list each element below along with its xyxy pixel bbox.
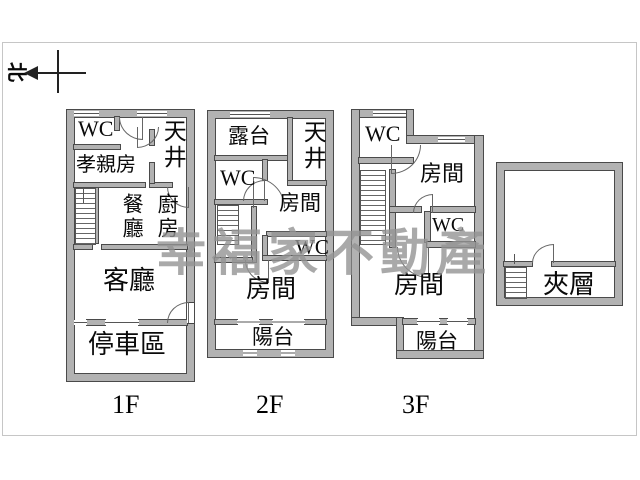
window bbox=[281, 350, 295, 356]
stairs-centerline bbox=[83, 189, 84, 203]
window bbox=[105, 320, 139, 325]
room-label-wc-upper: WC bbox=[220, 167, 255, 189]
window bbox=[417, 319, 440, 324]
window bbox=[237, 320, 260, 324]
stairs-centerline bbox=[514, 254, 515, 264]
room-label-balcony: 陽台 bbox=[416, 331, 458, 352]
room-label-mezzanine: 夾層 bbox=[543, 272, 595, 298]
room-label-skylight: 天井 bbox=[300, 120, 325, 172]
wall bbox=[305, 320, 326, 324]
wall bbox=[352, 318, 403, 325]
wall bbox=[440, 319, 447, 324]
plan-mezzanine: 夾層 bbox=[497, 163, 622, 305]
window bbox=[272, 320, 305, 324]
door-arc bbox=[413, 194, 433, 213]
door-arc bbox=[532, 244, 554, 263]
wall bbox=[431, 207, 475, 212]
wall bbox=[403, 319, 417, 324]
floor-plan-sheet: 北 幸福家不動產 WC 天井 孝親房 餐廳 廚房 客廳 停車區 bbox=[0, 0, 640, 480]
window bbox=[447, 319, 468, 324]
north-label: 北 bbox=[6, 62, 26, 82]
room-label-dining: 餐廳 bbox=[120, 193, 143, 241]
room-label-balcony: 陽台 bbox=[252, 327, 294, 348]
window bbox=[243, 350, 257, 356]
wall bbox=[74, 183, 145, 187]
stairs bbox=[505, 267, 527, 299]
stairs bbox=[75, 188, 96, 245]
wall bbox=[552, 262, 615, 266]
door-arc bbox=[167, 302, 189, 323]
room-label-room-upper: 房間 bbox=[279, 193, 321, 214]
room-label-terrace: 露台 bbox=[228, 126, 270, 147]
room-label-wc: WC bbox=[78, 118, 113, 140]
wall bbox=[288, 118, 292, 185]
window bbox=[373, 111, 408, 116]
wall bbox=[215, 320, 237, 324]
compass-line bbox=[57, 50, 59, 93]
watermark-text: 幸福家不動產 bbox=[156, 213, 492, 285]
room-label-room-upper: 房間 bbox=[420, 163, 464, 185]
wall bbox=[74, 145, 120, 149]
window bbox=[438, 137, 465, 142]
wall bbox=[504, 262, 532, 266]
wall bbox=[87, 320, 105, 325]
room-label-parking: 停車區 bbox=[88, 332, 166, 358]
window bbox=[137, 111, 167, 116]
room-label-parents: 孝親房 bbox=[76, 155, 136, 175]
wall bbox=[468, 319, 475, 324]
door-arc bbox=[137, 127, 159, 148]
floor-label-2f: 2F bbox=[256, 392, 283, 418]
floor-label-1f: 1F bbox=[112, 392, 139, 418]
wall bbox=[263, 160, 267, 180]
wall bbox=[74, 245, 92, 249]
wall bbox=[288, 181, 326, 185]
room-label-skylight: 天井 bbox=[160, 119, 185, 171]
room-label-wc-upper: WC bbox=[365, 123, 400, 145]
wall bbox=[150, 163, 154, 183]
room-label-living: 客廳 bbox=[103, 268, 155, 294]
floor-label-3f: 3F bbox=[402, 392, 429, 418]
window bbox=[74, 320, 87, 325]
wall bbox=[215, 156, 292, 160]
door-arc bbox=[391, 145, 421, 174]
window bbox=[230, 112, 270, 117]
wall bbox=[260, 320, 272, 324]
